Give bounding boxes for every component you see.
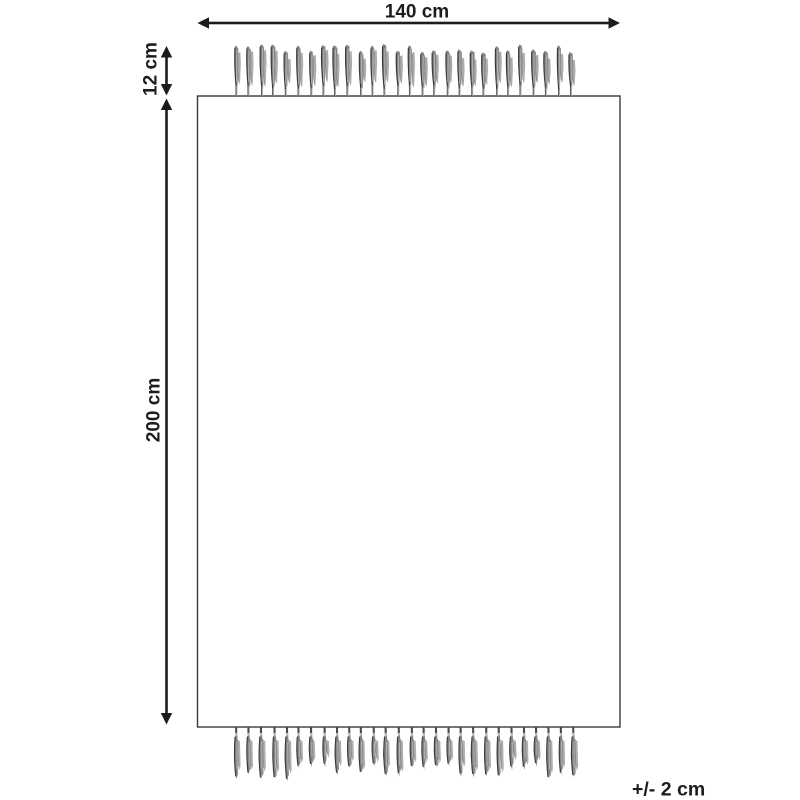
svg-text:12 cm: 12 cm (141, 42, 162, 96)
svg-text:+/- 2 cm: +/- 2 cm (632, 779, 705, 800)
svg-text:200 cm: 200 cm (144, 378, 165, 442)
svg-text:140 cm: 140 cm (385, 2, 449, 23)
